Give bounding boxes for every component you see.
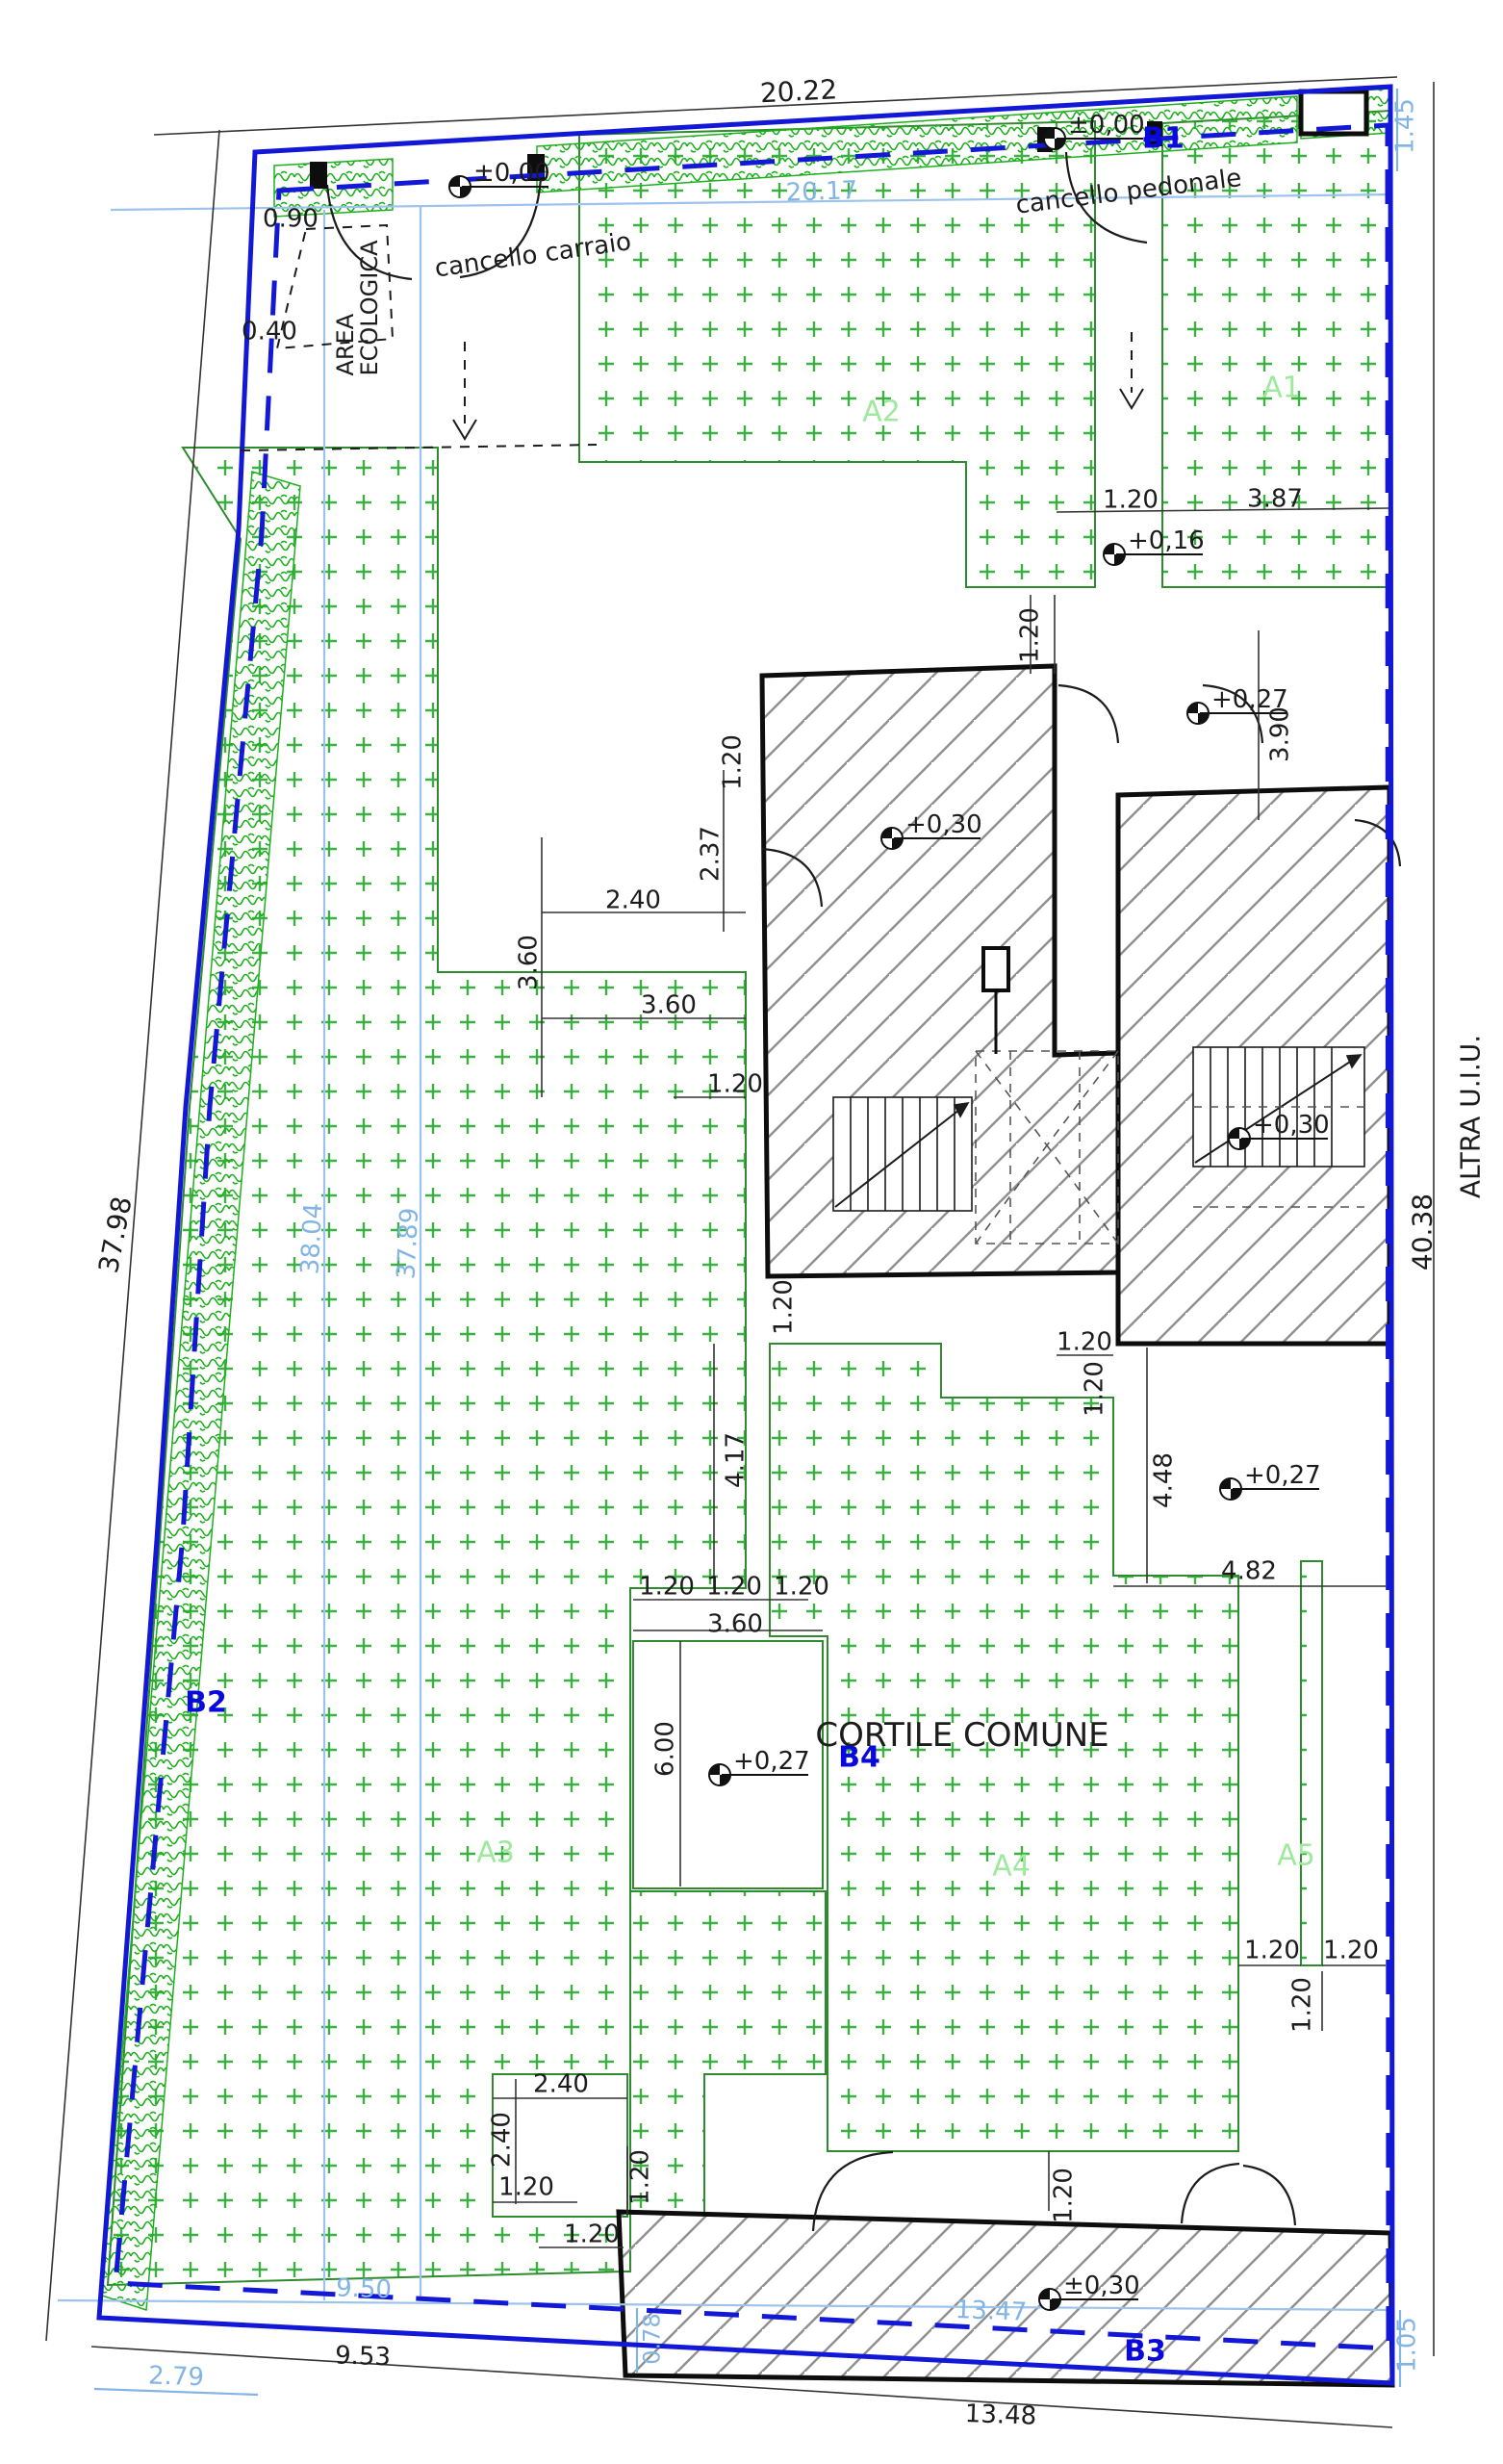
dimension-label: 13.48 [964,2401,1036,2430]
dimension-label: 4.48 [1151,1452,1177,1508]
dimension-label: 1.20 [1051,2168,1077,2223]
dimension-label: 6.00 [652,1721,678,1777]
site-plan-drawing: ±0,00±0,00+0,16+0,27+0,30+0,30+0,27+0,27… [0,0,1503,2464]
dimension-label: 9.53 [335,2343,392,2371]
dimension-label: 1.20 [1103,487,1159,513]
dimension-label: 3.60 [641,992,697,1018]
dimension-label: 2.40 [489,2112,515,2168]
dimension-label: 4.17 [723,1432,749,1488]
zone-label: A1 [1262,372,1301,403]
text-label: AREA ECOLOGICA [334,240,382,375]
zone-label: A3 [476,1837,515,1868]
svg-text:+0,30: +0,30 [1253,1111,1330,1140]
svg-text:+0,30: +0,30 [905,810,982,839]
zone-label: B1 [1142,123,1185,154]
svg-text:+0,27: +0,27 [733,1747,810,1776]
dimension-label: 4.82 [1221,1558,1277,1584]
elevation-marker: +0,27 [1220,1461,1321,1500]
dimension-label: 3.60 [707,1611,763,1637]
dimension-label: 1.20 [564,2221,620,2247]
svg-text:±0,00: ±0,00 [473,159,550,188]
dimension-label: 1.20 [1289,1977,1315,2033]
dimension-label: 1.05 [1394,2317,1420,2373]
dimension-label: 37.89 [394,1207,423,1280]
dimension-label: 1.45 [1392,98,1418,154]
dimension-label: 0.90 [263,206,318,232]
dimension-label: 0.78 [640,2313,664,2364]
dimension-label: 1.20 [1244,1938,1300,1963]
svg-text:+0,27: +0,27 [1244,1461,1321,1490]
dimension-label: 3.90 [1267,706,1293,762]
elevation-marker: ±0,00 [449,159,550,197]
dimension-label: 1.20 [774,1574,829,1600]
zone-label: A2 [862,397,901,427]
dimension-label: 20.22 [759,75,838,108]
dimension-label: 40.38 [1408,1193,1436,1270]
dimension-label: 1.20 [720,734,746,790]
zone-label: B2 [185,1687,227,1718]
text-label: ALTRA U.I.U. [1456,1035,1484,1198]
zone-label: A5 [1277,1840,1315,1871]
dimension-label: 2.40 [533,2071,589,2097]
dimension-label: 0.40 [242,319,297,345]
svg-text:±0,30: ±0,30 [1063,2271,1140,2300]
dimension-label: 9.50 [336,2275,393,2303]
dimension-label: 1.20 [1323,1938,1379,1963]
dimension-label: 1.20 [1017,607,1043,663]
dimension-label: 38.04 [297,1202,327,1275]
dimension-label: 3.87 [1247,486,1303,512]
dimension-label: 1.20 [1082,1361,1108,1417]
dimension-label: 2.37 [698,826,724,882]
dimension-label: 2.79 [148,2363,205,2391]
site-plan-page: ±0,00±0,00+0,16+0,27+0,30+0,30+0,27+0,27… [0,0,1503,2464]
dimension-label: 1.20 [771,1279,797,1335]
dimension-label: 2.40 [605,887,661,913]
dimension-label: 1.20 [627,2149,653,2205]
dimension-label: 1.20 [498,2174,554,2200]
zone-label: B3 [1124,2336,1166,2367]
dimension-label: 1.20 [706,1574,762,1600]
svg-text:+0,16: +0,16 [1128,526,1205,555]
dimension-label: 3.60 [516,935,542,990]
zone-label: A4 [992,1851,1031,1882]
zone-label: B4 [838,1742,880,1773]
dimension-label: 20.17 [785,178,857,207]
dimension-label: 1.20 [1057,1329,1112,1355]
dimension-label: 1.20 [639,1574,695,1600]
dimension-label: 1.20 [707,1071,763,1097]
svg-text:±0,00: ±0,00 [1068,111,1145,140]
dimension-label: 13.47 [955,2297,1027,2326]
